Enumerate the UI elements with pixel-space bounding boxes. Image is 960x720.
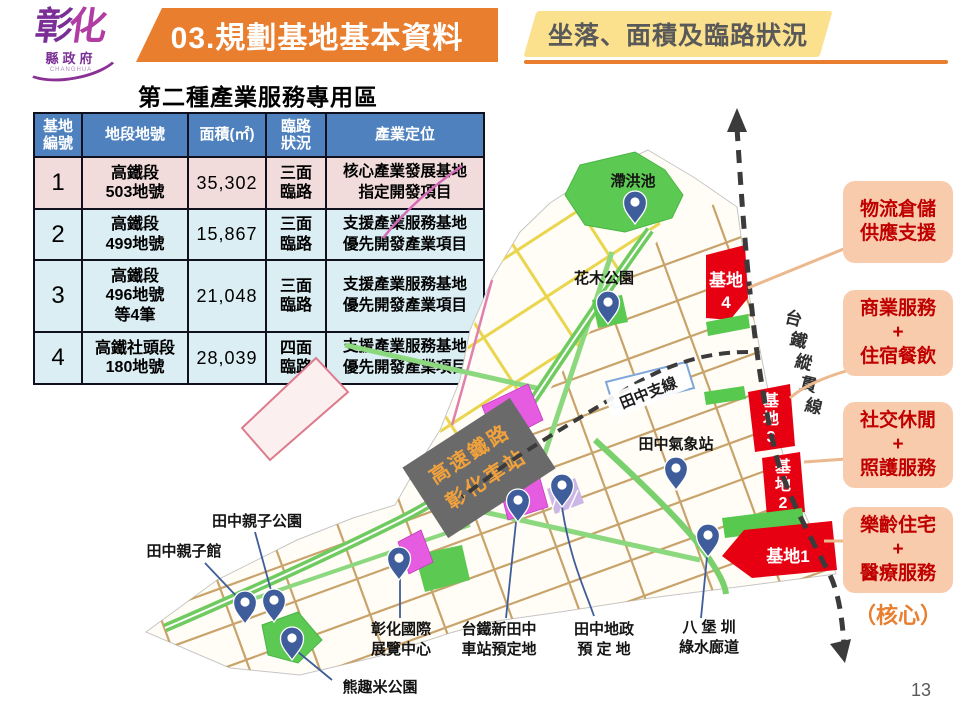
col-header-site-no: 基地編號	[34, 113, 82, 157]
slide-subtitle: 坐落、面積及臨路狀況	[548, 16, 808, 52]
svg-text:鐵: 鐵	[788, 328, 809, 352]
svg-text:線: 線	[803, 394, 824, 418]
slide-subtitle-banner: 坐落、面積及臨路狀況	[523, 11, 832, 57]
svg-text:基地: 基地	[708, 270, 743, 290]
label-detention-pond: 滯洪池	[610, 172, 655, 190]
label-flower-park: 花木公園	[574, 269, 634, 287]
planning-map: 高速鐵路 彰化車站 田中支線 基地 4 基地3 基地2 基地1	[130, 100, 860, 705]
label-babao-canal-l1: 八 堡 圳	[681, 618, 735, 636]
pink-boundary-stripe	[383, 166, 462, 238]
svg-text:基地1: 基地1	[765, 546, 809, 566]
callout-commercial: 商業服務 + 住宿餐飲	[843, 290, 953, 376]
svg-text:台: 台	[783, 306, 804, 330]
callout-logistics: 物流倉儲 供應支援	[843, 181, 953, 263]
label-expo-center-l2: 展覽中心	[371, 640, 431, 658]
slide: 彰化 縣政府 CHANGHUA 03.規劃基地基本資料 坐落、面積及臨路狀況 第…	[0, 0, 960, 720]
slide-title-banner: 03.規劃基地基本資料	[136, 8, 498, 62]
label-weather-station: 田中氣象站	[638, 435, 713, 453]
svg-text:縱: 縱	[793, 350, 815, 374]
callout-social-care: 社交休閒 + 照護服務	[843, 402, 953, 488]
core-note: （核心）	[840, 598, 956, 630]
rail-arrow-south	[830, 639, 851, 663]
label-bear-park: 熊趣米公園	[342, 678, 417, 696]
callout-senior-housing: 樂齡住宅 + 醫療服務	[843, 507, 953, 593]
label-land-office-l2: 預 定 地	[577, 640, 630, 658]
label-parent-child-center: 田中親子館	[146, 542, 221, 560]
slide-title: 03.規劃基地基本資料	[171, 13, 464, 57]
rail-arrow-north	[727, 108, 747, 132]
label-expo-center-l1: 彰化國際	[371, 620, 432, 638]
salmon-parcel	[242, 358, 348, 460]
svg-text:4: 4	[721, 293, 731, 312]
subtitle-underline	[524, 60, 948, 64]
page-number: 13	[896, 680, 946, 701]
label-new-station-l2: 車站預定地	[461, 640, 536, 658]
label-new-station-l1: 台鐵新田中	[461, 620, 536, 638]
changhua-county-gov-logo: 彰化 縣政府 CHANGHUA	[14, 6, 128, 80]
label-babao-canal-l2: 綠水廊道	[679, 638, 739, 656]
label-land-office-l1: 田中地政	[574, 620, 635, 638]
label-parent-child-park: 田中親子公園	[212, 512, 302, 530]
